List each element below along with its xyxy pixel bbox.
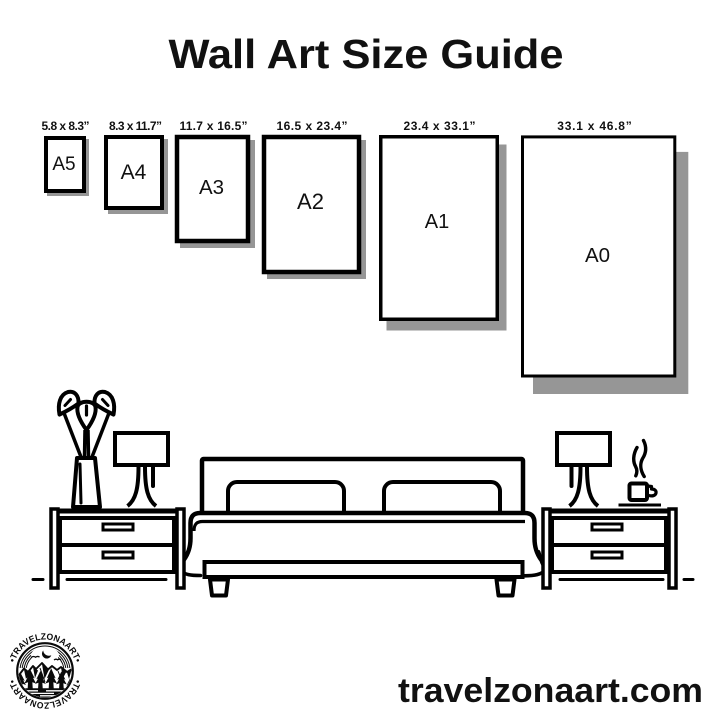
svg-text:A1: A1 xyxy=(425,211,449,233)
svg-text:A5: A5 xyxy=(52,154,75,175)
svg-text:travelzonaart.com: travelzonaart.com xyxy=(398,672,703,710)
svg-text:8.3 x 11.7”: 8.3 x 11.7” xyxy=(109,119,162,133)
svg-text:A3: A3 xyxy=(199,176,224,199)
svg-text:33.1 x 46.8”: 33.1 x 46.8” xyxy=(557,119,632,133)
svg-text:Wall Art Size Guide: Wall Art Size Guide xyxy=(169,31,564,77)
svg-text:23.4 x 33.1”: 23.4 x 33.1” xyxy=(404,119,476,133)
svg-text:A4: A4 xyxy=(121,161,147,184)
svg-text:16.5 x 23.4”: 16.5 x 23.4” xyxy=(277,119,348,133)
svg-text:A2: A2 xyxy=(297,189,324,214)
svg-text:A0: A0 xyxy=(585,244,610,267)
svg-text:11.7 x 16.5”: 11.7 x 16.5” xyxy=(180,119,248,133)
svg-text:5.8 x 8.3”: 5.8 x 8.3” xyxy=(42,119,90,133)
